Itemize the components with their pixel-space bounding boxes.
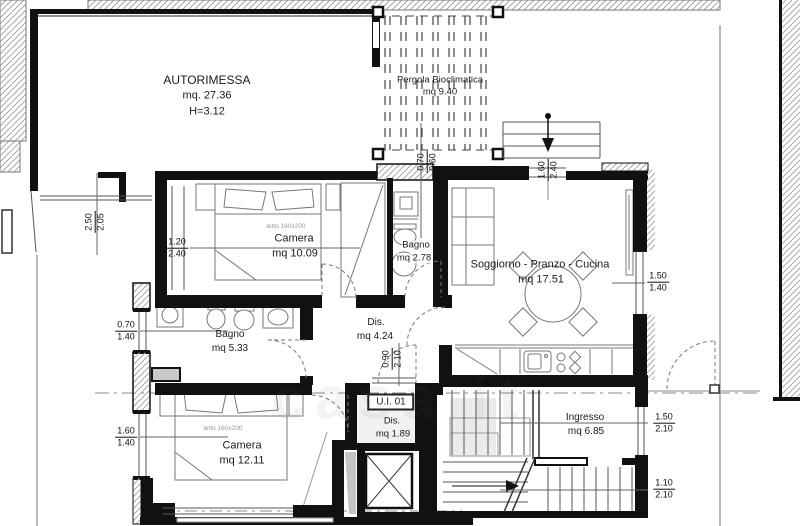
room-label-dis: Dis. [367, 318, 384, 328]
dimension-camera2-window: 1.601.40 [115, 426, 137, 449]
dimension-dis-door: 0.902.10 [381, 348, 404, 370]
room-label-unit-dis: Dis. [384, 416, 400, 426]
dimension-camera1-window: 1.202.40 [166, 237, 188, 260]
room-area-bagno1: mq 2.78 [397, 253, 431, 263]
room-height-autorimessa: H=3.12 [189, 107, 225, 118]
dimension-ingresso-window: 1.502.10 [653, 412, 675, 435]
room-area-pergola: mq 9.40 [423, 87, 457, 97]
room-label-camera1: Camera [274, 234, 313, 245]
dimension-bagno1-window: 0.700.60 [416, 151, 439, 173]
garage-walls [30, 9, 380, 252]
entry-steps [503, 113, 600, 200]
room-label-autorimessa: AUTORIMESSA [163, 74, 250, 86]
room-area-soggiorno: mq 17.51 [518, 275, 564, 286]
room-area-dis: mq 4.24 [357, 332, 393, 342]
room-area-bagno2: mq 5.33 [212, 344, 248, 354]
room-area-autorimessa: mq. 27.36 [183, 91, 232, 102]
wardrobe-camera1 [341, 183, 385, 297]
room-area-unit-dis: mq 1.89 [376, 429, 410, 439]
bathroom1-fixtures [392, 192, 418, 276]
room-label-bagno1: Bagno [402, 240, 429, 250]
room-label-camera2: Camera [222, 441, 261, 452]
bed-camera1 [196, 184, 340, 280]
dimension-soggiorno-window: 1.501.40 [647, 271, 669, 294]
room-label-ingresso: Ingresso [566, 413, 604, 423]
dimension-stair-door: 1.102.10 [653, 478, 675, 501]
gate-jamb [648, 385, 760, 393]
room-area-camera1: mq 10.09 [272, 249, 318, 260]
room-label-soggiorno: Soggiorno - Pranzo - Cucina [471, 260, 610, 271]
bed-note-camera1: letto 160x200 [266, 224, 305, 231]
tv-cabinet [626, 190, 633, 275]
dimension-entry-door: 1.602.40 [537, 159, 560, 181]
elevator [345, 443, 427, 518]
dimension-garage-door: 2.502.05 [84, 211, 107, 233]
room-label-pergola: Pergola Bioclimatica [397, 75, 483, 85]
floor-plan: casa it AUTORIMESSA mq. 27.36 H=3.12 Per… [0, 0, 800, 526]
room-label-bagno2: Bagno [216, 330, 245, 340]
dimension-bagno2-window: 0.701.40 [115, 320, 137, 343]
unit-badge: U.I. 01 [367, 394, 414, 411]
room-area-ingresso: mq 6.85 [568, 427, 604, 437]
room-area-camera2: mq 12.11 [219, 456, 264, 467]
bed-note-camera2: letto 160x200 [203, 426, 242, 433]
